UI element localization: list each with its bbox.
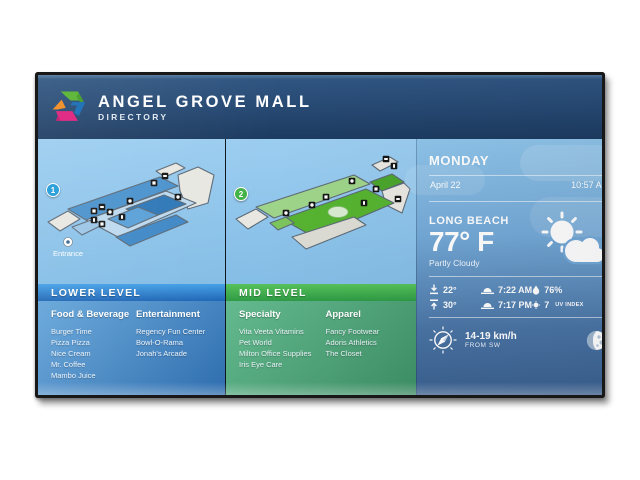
humidity-value: 76% (544, 285, 562, 295)
date-label: April 22 (430, 180, 461, 190)
entrance-pin-icon (64, 238, 73, 247)
low-temp-value: 22° (443, 285, 457, 295)
level-2-badge: 2 (234, 187, 248, 201)
temperature-value: 77° F (429, 227, 534, 257)
weekday-label: MONDAY (429, 153, 605, 168)
wind-direction-value: FROM SW (465, 342, 517, 349)
mid-level-bar: MID LEVEL (226, 284, 416, 301)
divider (429, 201, 605, 202)
mid-level-floorplan (226, 139, 416, 284)
current-conditions: LONG BEACH 77° F Partly Cloudy (429, 215, 605, 269)
uv-label: UV INDEX (555, 302, 583, 308)
list-item: Vita Veeta Vitamins (239, 326, 326, 337)
mid-level-map: 2 (226, 139, 416, 284)
low-temp-stat: 22° (429, 284, 481, 295)
low-temp-icon (429, 284, 439, 295)
level-1-badge: 1 (46, 183, 60, 197)
mall-logo-icon (51, 90, 87, 124)
apparel-column: Apparel Fancy Footwear Adoris Athletics … (326, 307, 413, 395)
list-item: Fancy Footwear (326, 326, 413, 337)
content-area: 1 (38, 139, 602, 395)
weather-stats: 22° 7:22 AM 76% (429, 284, 605, 310)
sunset-stat: 7:17 PM (481, 300, 532, 310)
entertainment-column: Entertainment Regency Fun Center Bowl-O-… (136, 307, 221, 395)
list-item: Regency Fun Center (136, 326, 221, 337)
wind-compass-icon (429, 326, 457, 354)
list-item: Mr. Coffee (51, 359, 136, 370)
signage-display: ANGEL GROVE MALL DIRECTORY 1 (35, 72, 605, 398)
lower-level-map: 1 (38, 139, 225, 284)
sunrise-icon (481, 285, 494, 295)
divider (429, 317, 605, 318)
uv-icon (532, 301, 540, 309)
high-temp-value: 30° (443, 300, 457, 310)
list-item: Milton Office Supplies (239, 348, 326, 359)
wind-speed-value: 14-19 km/h (465, 331, 517, 342)
wind-section: 14-19 km/h FROM SW (429, 326, 605, 354)
mid-level-panel: 2 (225, 139, 416, 395)
weather-panel: MONDAY April 22 10:57 AM LONG BEACH 77° … (416, 139, 605, 395)
entrance-label: Entrance (53, 249, 83, 258)
header-titles: ANGEL GROVE MALL DIRECTORY (98, 93, 312, 122)
list-item: Pet World (239, 337, 326, 348)
partly-cloudy-icon (534, 211, 605, 269)
sunrise-value: 7:22 AM (498, 285, 532, 295)
list-item: Iris Eye Care (239, 359, 326, 370)
list-item: Mambo Juice (51, 370, 136, 381)
lower-level-floorplan: Entrance (38, 139, 225, 284)
mall-title: ANGEL GROVE MALL (98, 93, 312, 112)
specialty-column: Specialty Vita Veeta Vitamins Pet World … (239, 307, 326, 395)
moon-phase-icon (586, 330, 605, 351)
lower-level-bar: LOWER LEVEL (38, 284, 225, 301)
mid-level-list: Specialty Vita Veeta Vitamins Pet World … (226, 301, 416, 395)
high-temp-stat: 30° (429, 299, 481, 310)
screen: ANGEL GROVE MALL DIRECTORY 1 (35, 72, 605, 398)
category-title: Specialty (239, 309, 326, 320)
category-title: Food & Beverage (51, 309, 136, 320)
lower-level-panel: 1 (38, 139, 225, 395)
sunset-value: 7:17 PM (498, 300, 532, 310)
time-label: 10:57 AM (571, 180, 605, 190)
lower-level-list: Food & Beverage Burger Time Pizza Pizza … (38, 301, 225, 395)
category-title: Apparel (326, 309, 413, 320)
list-item: Bowl-O-Rama (136, 337, 221, 348)
sunrise-stat: 7:22 AM (481, 285, 532, 295)
sunset-icon (481, 300, 494, 310)
header-bar: ANGEL GROVE MALL DIRECTORY (38, 75, 602, 139)
humidity-icon (532, 285, 540, 295)
list-item: Nice Cream (51, 348, 136, 359)
list-item: Burger Time (51, 326, 136, 337)
high-temp-icon (429, 299, 439, 310)
list-item: Pizza Pizza (51, 337, 136, 348)
condition-label: Partly Cloudy (429, 258, 534, 268)
humidity-stat: 76% (532, 285, 605, 295)
uv-value: 7 (544, 300, 549, 310)
list-item: Jonah's Arcade (136, 348, 221, 359)
list-item: The Closet (326, 348, 413, 359)
food-beverage-column: Food & Beverage Burger Time Pizza Pizza … (51, 307, 136, 395)
mall-subtitle: DIRECTORY (98, 112, 312, 122)
divider (429, 276, 605, 277)
uv-index-stat: 7 UV INDEX (532, 300, 605, 310)
list-item: Adoris Athletics (326, 337, 413, 348)
category-title: Entertainment (136, 309, 221, 320)
